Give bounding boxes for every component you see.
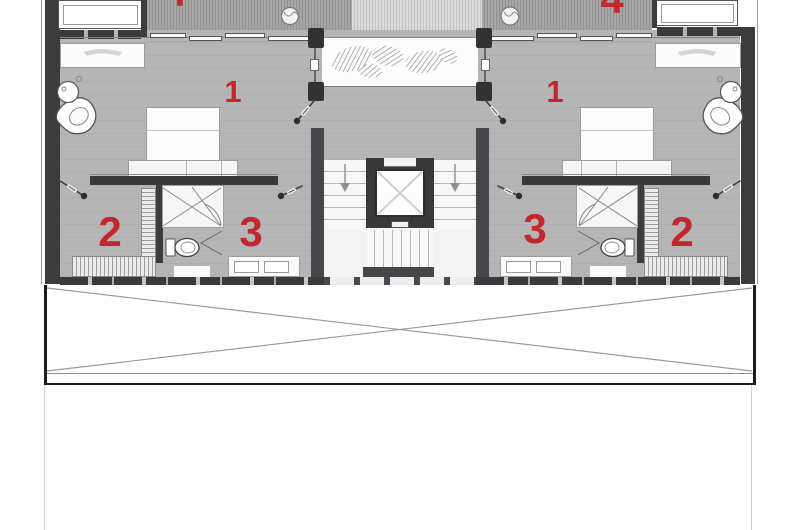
sliding-panel bbox=[268, 36, 312, 41]
void-rug-panel bbox=[322, 38, 478, 87]
bed-left-fold-line bbox=[147, 130, 219, 131]
partition-wall-right bbox=[522, 176, 710, 185]
room-label-4-top-right: 4 bbox=[590, 0, 634, 20]
room-label-1-left: 1 bbox=[211, 76, 255, 107]
cabinet-drawer bbox=[234, 261, 259, 273]
bed-right bbox=[580, 107, 654, 162]
sliding-panel bbox=[225, 33, 265, 38]
stair-pier-left bbox=[311, 128, 324, 284]
room-label-3-right: 3 bbox=[513, 208, 557, 250]
balcony-inner-line bbox=[47, 373, 753, 374]
floor-plan: 1 1 2 2 3 3 4 4 bbox=[0, 0, 800, 530]
facade-wall-right bbox=[476, 277, 740, 285]
bed-right-fold-line bbox=[581, 130, 653, 131]
post bbox=[308, 28, 324, 48]
stair-flight-right bbox=[432, 160, 476, 230]
deck-skylight-strip bbox=[352, 0, 482, 30]
skylight-window-left bbox=[58, 0, 142, 29]
cabinet-right bbox=[500, 256, 572, 277]
room-label-2-right: 2 bbox=[660, 211, 704, 253]
partition-topline-right bbox=[522, 174, 710, 175]
cabinet-drawer bbox=[536, 261, 561, 273]
desk-left bbox=[60, 43, 145, 68]
cabinet-left bbox=[228, 256, 300, 277]
bench-left bbox=[72, 256, 156, 277]
cabinet-drawer bbox=[264, 261, 289, 273]
cabinet-drawer bbox=[506, 261, 531, 273]
post bbox=[476, 82, 492, 101]
shower-right bbox=[576, 185, 638, 228]
room-label-3-left: 3 bbox=[229, 211, 273, 253]
wall-divider-left bbox=[141, 0, 147, 38]
bath-wall-right bbox=[637, 185, 644, 263]
partition-topline-left bbox=[90, 174, 278, 175]
dashed-wall-right bbox=[657, 27, 741, 36]
outline-right bbox=[757, 0, 758, 284]
post bbox=[476, 28, 492, 48]
shower-left bbox=[162, 185, 224, 228]
skylight-window-left-frame bbox=[63, 5, 138, 25]
wall-right bbox=[741, 27, 755, 284]
stair-flight-left bbox=[324, 160, 368, 230]
bench-right bbox=[644, 256, 728, 277]
sliding-panel bbox=[580, 36, 613, 41]
balcony bbox=[44, 285, 756, 385]
desk-right bbox=[655, 43, 741, 68]
elevator-notch bbox=[391, 221, 409, 228]
post bbox=[308, 82, 324, 101]
sliding-panel bbox=[537, 33, 577, 38]
bed-left bbox=[146, 107, 220, 162]
facade-wall-left bbox=[60, 277, 324, 285]
skylight-window-right bbox=[656, 0, 738, 26]
skylight-window-right-frame bbox=[661, 4, 734, 23]
wall-divider-right bbox=[652, 0, 657, 28]
stair-flight-lower bbox=[366, 230, 434, 267]
elevator-door-gap bbox=[384, 158, 416, 167]
room-label-4-top-left: 4 bbox=[153, 0, 197, 13]
outline-left bbox=[41, 0, 42, 284]
room-label-2-left: 2 bbox=[88, 211, 132, 253]
turnbuckle-left bbox=[310, 59, 319, 71]
turnbuckle-right bbox=[481, 59, 490, 71]
sliding-panel bbox=[189, 36, 222, 41]
stair-pier-right bbox=[476, 128, 489, 284]
below-line-right bbox=[751, 385, 752, 530]
sliding-panel bbox=[616, 33, 652, 38]
room-label-1-right: 1 bbox=[533, 76, 577, 107]
elevator-cab bbox=[375, 169, 425, 217]
wall-left bbox=[45, 0, 60, 284]
sliding-panel bbox=[490, 36, 534, 41]
partition-wall-left bbox=[90, 176, 278, 185]
sliding-panel bbox=[150, 33, 186, 38]
facade-wall-center bbox=[324, 277, 476, 285]
below-line-left bbox=[44, 385, 45, 530]
